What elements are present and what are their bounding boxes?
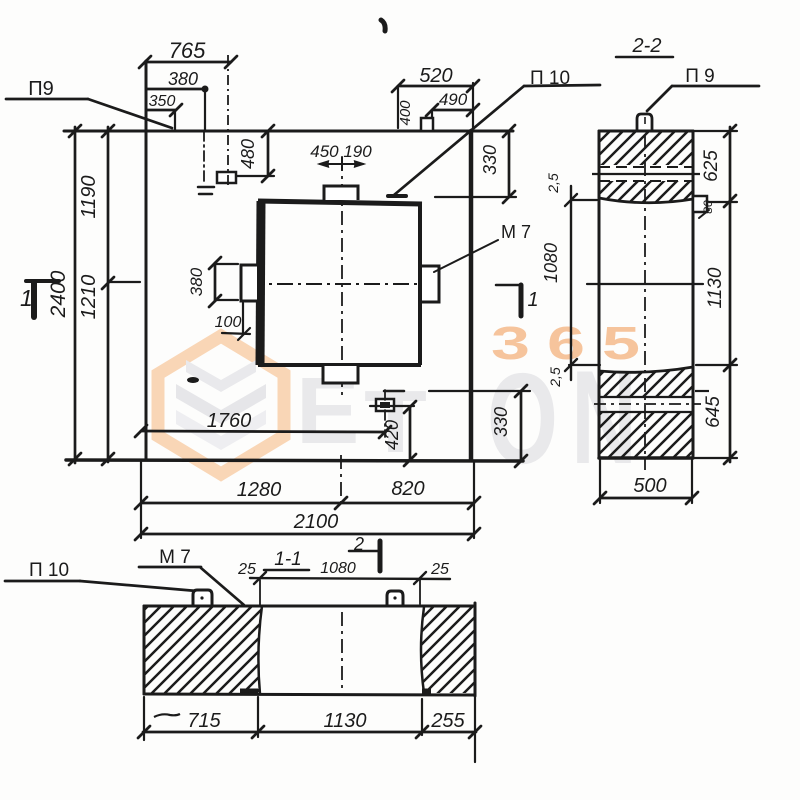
svg-text:25: 25 [430,561,449,578]
svg-text:350: 350 [149,93,176,110]
svg-text:1080: 1080 [320,560,356,577]
svg-text:480: 480 [238,139,258,169]
svg-text:3: 3 [491,317,530,369]
svg-text:625: 625 [701,150,722,182]
svg-text:715: 715 [187,710,221,732]
svg-text:2,5: 2,5 [547,367,563,388]
svg-text:6: 6 [547,317,585,369]
svg-text:1: 1 [20,285,33,311]
svg-text:1: 1 [527,289,538,311]
svg-text:1130: 1130 [323,710,366,732]
svg-text:25: 25 [237,561,256,578]
svg-text:П9: П9 [28,78,54,100]
svg-text:1-1: 1-1 [274,549,301,570]
svg-text:490: 490 [439,90,468,109]
svg-text:1080: 1080 [541,243,561,283]
svg-text:М 7: М 7 [159,547,191,568]
svg-text:765: 765 [169,38,206,63]
svg-text:100: 100 [215,314,242,331]
svg-text:1760: 1760 [207,410,252,432]
svg-text:1210: 1210 [78,275,100,320]
svg-text:330: 330 [491,407,511,437]
svg-text:П 10: П 10 [29,560,69,581]
svg-text:330: 330 [480,145,500,175]
svg-text:П 9: П 9 [685,66,715,87]
svg-text:500: 500 [633,475,666,497]
svg-text:400: 400 [397,100,414,126]
svg-text:255: 255 [430,710,465,732]
svg-text:2,5: 2,5 [545,173,561,194]
svg-text:520: 520 [419,65,452,87]
svg-text:420: 420 [382,420,402,450]
svg-text:2400: 2400 [47,270,70,318]
svg-text:2-2: 2-2 [632,35,662,57]
svg-text:820: 820 [391,478,424,500]
svg-text:5: 5 [602,317,640,369]
svg-text:380: 380 [187,267,206,296]
svg-text:380: 380 [168,69,198,89]
svg-text:1280: 1280 [237,479,282,501]
svg-text:645: 645 [703,396,724,428]
svg-text:1130: 1130 [705,267,726,308]
svg-text:2100: 2100 [293,511,339,533]
svg-text:1190: 1190 [78,175,100,218]
svg-text:М 7: М 7 [501,222,531,242]
